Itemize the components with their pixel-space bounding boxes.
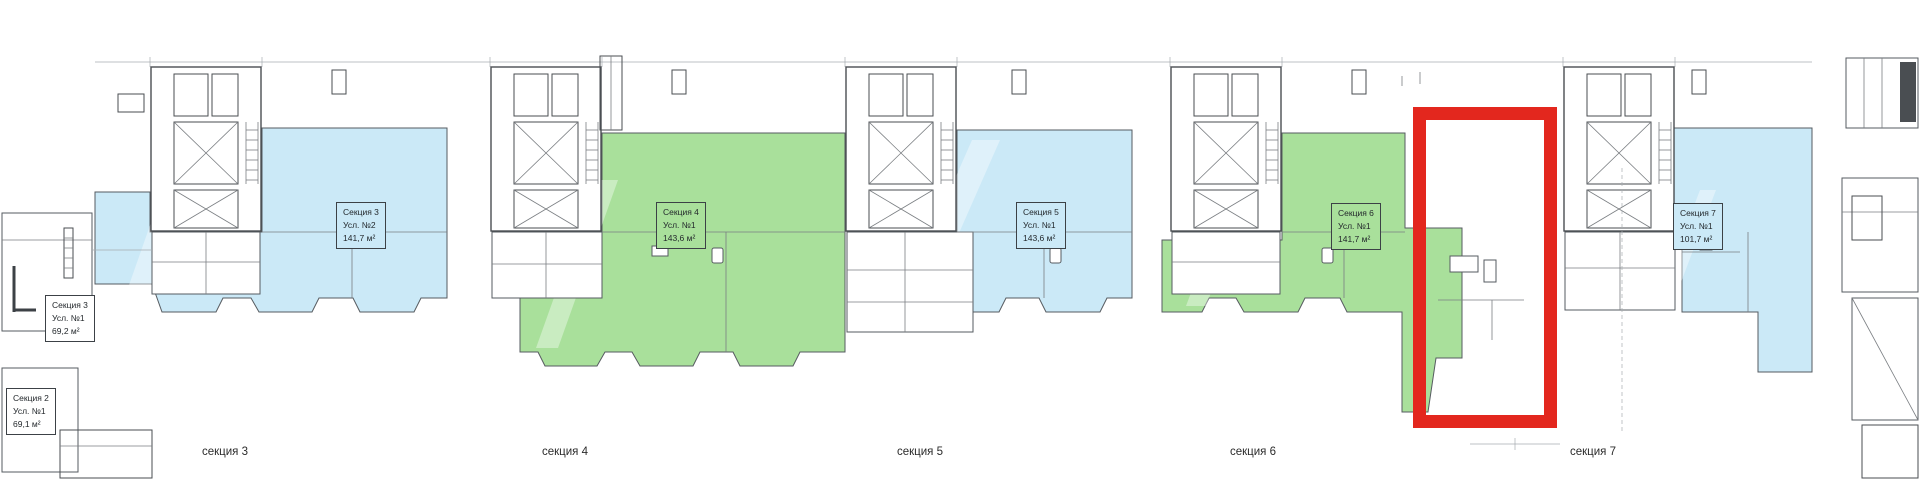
unit-number: Усл. №1 [52, 312, 88, 325]
unit-number: Усл. №1 [663, 219, 699, 232]
unit-label-section-3-u1[interactable]: Секция 3 Усл. №1 69,2 м² [45, 295, 95, 342]
axis-label-section-4: секция 4 [542, 446, 588, 458]
unit-area: 141,7 м² [343, 232, 379, 245]
unit-section-name: Секция 6 [1338, 207, 1374, 220]
unit-area: 143,6 м² [1023, 232, 1059, 245]
unit-area: 143,6 м² [663, 232, 699, 245]
unit-section-name: Секция 3 [343, 206, 379, 219]
core-section-7 [1564, 67, 1674, 231]
unit-label-section-6-u1[interactable]: Секция 6 Усл. №1 141,7 м² [1331, 203, 1381, 250]
unit-label-section-7-u1[interactable]: Секция 7 Усл. №1 101,7 м² [1673, 203, 1723, 250]
unit-area: 69,1 м² [13, 418, 49, 431]
unit-section-name: Секция 5 [1023, 206, 1059, 219]
core-section-6 [1171, 67, 1281, 231]
core-section-5 [846, 67, 956, 231]
unit-number: Усл. №1 [1338, 220, 1374, 233]
unit-area: 141,7 м² [1338, 233, 1374, 246]
unit-label-section-4-u1[interactable]: Секция 4 Усл. №1 143,6 м² [656, 202, 706, 249]
unit-section-name: Секция 7 [1680, 207, 1716, 220]
unit-number: Усл. №2 [343, 219, 379, 232]
unit-section-name: Секция 3 [52, 299, 88, 312]
unit-number: Усл. №1 [1680, 220, 1716, 233]
unit-label-section-2-u1[interactable]: Секция 2 Усл. №1 69,1 м² [6, 388, 56, 435]
unit-area: 69,2 м² [52, 325, 88, 338]
core-section-4 [491, 67, 601, 231]
highlight-selected-section[interactable] [1413, 107, 1557, 428]
unit-label-section-5-u1[interactable]: Секция 5 Усл. №1 143,6 м² [1016, 202, 1066, 249]
axis-label-section-6: секция 6 [1230, 446, 1276, 458]
unit-label-section-3-u2[interactable]: Секция 3 Усл. №2 141,7 м² [336, 202, 386, 249]
unit-number: Усл. №1 [1023, 219, 1059, 232]
unit-number: Усл. №1 [13, 405, 49, 418]
axis-label-section-5: секция 5 [897, 446, 943, 458]
core-section-3 [151, 67, 261, 231]
unit-area: 101,7 м² [1680, 233, 1716, 246]
floor-plan-drawing [0, 0, 1920, 480]
floor-plan-canvas: Секция 3 Усл. №2 141,7 м² Секция 3 Усл. … [0, 0, 1920, 480]
axis-label-section-3: секция 3 [202, 446, 248, 458]
axis-label-section-7: секция 7 [1570, 446, 1616, 458]
unit-section-name: Секция 2 [13, 392, 49, 405]
top-dimension-line [95, 57, 1812, 67]
unit-section-name: Секция 4 [663, 206, 699, 219]
